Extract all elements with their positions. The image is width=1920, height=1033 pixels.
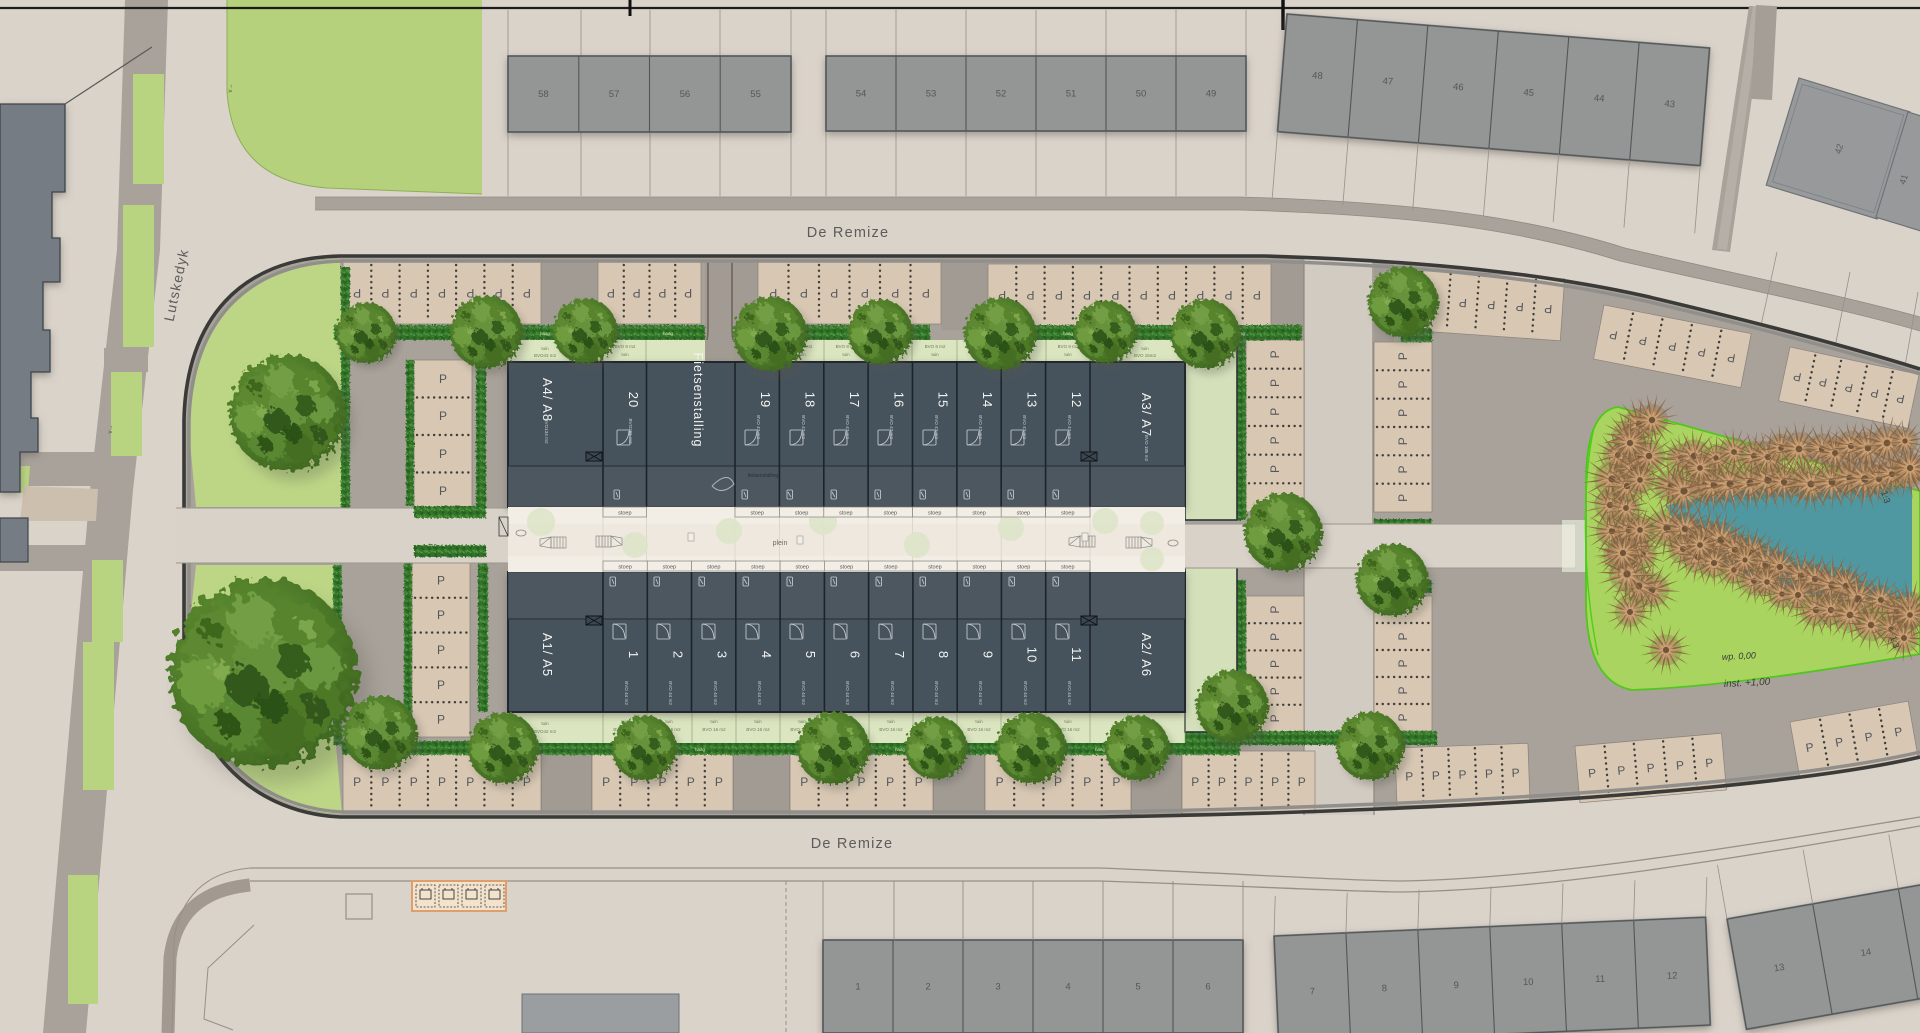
svg-text:P: P — [438, 286, 446, 300]
svg-text:2: 2 — [925, 982, 930, 993]
svg-text:A1/ A5: A1/ A5 — [540, 633, 555, 677]
svg-text:tuin: tuin — [710, 719, 718, 724]
svg-text:BVO 47 m2: BVO 47 m2 — [845, 415, 850, 439]
svg-text:P: P — [633, 286, 641, 300]
svg-text:3: 3 — [995, 982, 1000, 993]
svg-text:stoep: stoep — [750, 511, 763, 517]
svg-text:P: P — [687, 775, 695, 789]
svg-text:P: P — [891, 286, 899, 300]
svg-text:stoep: stoep — [1017, 565, 1030, 571]
svg-text:P: P — [437, 608, 445, 622]
svg-text:P: P — [438, 775, 446, 789]
svg-text:1: 1 — [855, 982, 860, 993]
svg-text:P: P — [861, 286, 869, 300]
svg-text:8: 8 — [1382, 983, 1388, 994]
svg-text:BVO 44 m2: BVO 44 m2 — [978, 681, 983, 705]
svg-text:stoep: stoep — [972, 511, 985, 517]
svg-text:BVO 47 m2: BVO 47 m2 — [889, 415, 894, 439]
svg-text:P: P — [1083, 288, 1091, 302]
svg-text:stoep: stoep — [884, 511, 897, 517]
svg-text:stoep: stoep — [840, 565, 853, 571]
svg-text:P: P — [1268, 408, 1282, 416]
svg-text:P: P — [1405, 769, 1413, 783]
svg-text:BVO43 m2: BVO43 m2 — [534, 353, 557, 358]
svg-text:4: 4 — [1065, 982, 1070, 993]
svg-text:tuin: tuin — [541, 721, 549, 726]
svg-text:P: P — [1168, 288, 1176, 302]
svg-text:v→: v→ — [228, 84, 234, 93]
svg-text:haag: haag — [695, 747, 706, 752]
svg-text:P: P — [437, 573, 445, 587]
svg-text:stoep: stoep — [973, 565, 986, 571]
svg-text:BVO 47 m2: BVO 47 m2 — [801, 415, 806, 439]
svg-text:P: P — [381, 286, 389, 300]
svg-text:P: P — [1271, 775, 1279, 789]
svg-text:plein: plein — [773, 540, 788, 547]
svg-text:A3/ A7: A3/ A7 — [1139, 393, 1154, 437]
svg-text:BVO 47 m2: BVO 47 m2 — [978, 415, 983, 439]
svg-text:BVO 185 m2: BVO 185 m2 — [1144, 435, 1149, 462]
svg-text:16: 16 — [891, 392, 906, 408]
svg-text:58: 58 — [538, 89, 549, 100]
svg-text:12: 12 — [1667, 970, 1678, 981]
svg-text:BVO 44 m2: BVO 44 m2 — [1067, 681, 1072, 705]
svg-text:P: P — [1396, 380, 1410, 388]
svg-text:P: P — [1253, 288, 1261, 302]
svg-text:tuin: tuin — [754, 719, 762, 724]
svg-text:stoep: stoep — [884, 565, 897, 571]
svg-text:stoep: stoep — [618, 565, 631, 571]
svg-text:stoep: stoep — [795, 565, 808, 571]
svg-text:3: 3 — [715, 651, 730, 659]
svg-text:P: P — [1511, 766, 1519, 780]
svg-text:tuin: tuin — [1064, 352, 1072, 357]
svg-text:P: P — [1268, 379, 1282, 387]
svg-text:stoep: stoep — [839, 511, 852, 517]
svg-text:P: P — [658, 286, 666, 300]
svg-text:tuin: tuin — [1141, 346, 1149, 351]
svg-text:P: P — [1432, 768, 1440, 782]
svg-text:stoep: stoep — [663, 565, 676, 571]
svg-text:P: P — [439, 484, 447, 498]
svg-text:BVO 44 m2: BVO 44 m2 — [757, 681, 762, 705]
svg-text:P: P — [1268, 436, 1282, 444]
svg-text:5: 5 — [1135, 982, 1140, 993]
svg-text:stoep: stoep — [928, 511, 941, 517]
svg-text:BVO 15m2: BVO 15m2 — [1134, 353, 1157, 358]
svg-text:P: P — [1485, 767, 1493, 781]
svg-text:P: P — [1544, 302, 1553, 317]
svg-text:P: P — [1268, 465, 1282, 473]
svg-text:haag: haag — [663, 331, 674, 336]
svg-text:6: 6 — [848, 651, 863, 659]
svg-text:P: P — [1218, 775, 1226, 789]
svg-text:P: P — [437, 713, 445, 727]
svg-text:P: P — [410, 775, 418, 789]
svg-text:P: P — [381, 775, 389, 789]
svg-text:9: 9 — [980, 651, 995, 659]
svg-text:6: 6 — [1205, 982, 1210, 993]
svg-text:P: P — [1675, 758, 1684, 773]
svg-text:11: 11 — [1069, 647, 1084, 663]
svg-text:P: P — [1268, 350, 1282, 358]
svg-text:P: P — [1224, 288, 1232, 302]
svg-text:7: 7 — [892, 651, 907, 659]
svg-text:stoep: stoep — [707, 565, 720, 571]
svg-text:10: 10 — [1025, 647, 1040, 663]
svg-text:P: P — [466, 286, 474, 300]
svg-text:BVO 47 m2: BVO 47 m2 — [1067, 415, 1072, 439]
svg-text:wp. 0,00: wp. 0,00 — [1722, 650, 1757, 662]
svg-text:BVO 8 m2: BVO 8 m2 — [1058, 344, 1079, 349]
svg-text:tuin: tuin — [931, 352, 939, 357]
svg-text:P: P — [1083, 775, 1091, 789]
svg-text:P: P — [602, 775, 610, 789]
svg-text:49: 49 — [1206, 89, 1217, 100]
svg-text:P: P — [1191, 775, 1199, 789]
svg-text:P: P — [1026, 288, 1034, 302]
svg-text:stoep: stoep — [928, 565, 941, 571]
svg-text:56: 56 — [680, 89, 691, 100]
svg-text:P: P — [1396, 713, 1410, 721]
svg-text:De Remize: De Remize — [807, 225, 890, 241]
svg-text:P: P — [353, 286, 361, 300]
svg-text:P: P — [1140, 288, 1148, 302]
svg-text:BVO 47 m2: BVO 47 m2 — [934, 415, 939, 439]
svg-text:45: 45 — [1523, 87, 1534, 99]
svg-text:A2/ A6: A2/ A6 — [1139, 633, 1154, 677]
svg-text:47: 47 — [1382, 76, 1393, 88]
svg-text:46: 46 — [1453, 82, 1464, 94]
svg-text:haag: haag — [540, 331, 551, 336]
svg-text:BVO 16 m2: BVO 16 m2 — [967, 727, 991, 732]
svg-text:v→: v→ — [108, 425, 114, 434]
svg-text:stoep: stoep — [618, 511, 631, 517]
svg-text:tuin: tuin — [1064, 719, 1072, 724]
svg-text:BVO 44 m2: BVO 44 m2 — [624, 681, 629, 705]
svg-text:57: 57 — [609, 89, 620, 100]
svg-text:tuin: tuin — [842, 352, 850, 357]
svg-text:P: P — [1588, 766, 1597, 781]
svg-text:P: P — [1268, 606, 1282, 614]
svg-text:P: P — [1268, 633, 1282, 641]
svg-text:tuin: tuin — [798, 719, 806, 724]
svg-text:BVO 8 m2: BVO 8 m2 — [925, 344, 946, 349]
svg-text:P: P — [1111, 288, 1119, 302]
svg-text:P: P — [800, 286, 808, 300]
svg-text:A4/ A8: A4/ A8 — [540, 378, 555, 422]
svg-text:P: P — [684, 286, 692, 300]
svg-text:P: P — [439, 447, 447, 461]
svg-text:P: P — [1515, 300, 1524, 315]
svg-text:BVO 44 m2: BVO 44 m2 — [801, 681, 806, 705]
svg-text:P: P — [1244, 775, 1252, 789]
svg-text:P: P — [922, 286, 930, 300]
svg-text:BVO 44 m2: BVO 44 m2 — [713, 681, 718, 705]
svg-text:P: P — [1458, 768, 1466, 782]
svg-text:P: P — [607, 286, 615, 300]
svg-text:Fietsenstalling: Fietsenstalling — [691, 353, 705, 448]
svg-text:P: P — [437, 643, 445, 657]
svg-text:P: P — [466, 775, 474, 789]
svg-text:P: P — [1617, 763, 1626, 778]
svg-text:P: P — [1298, 775, 1306, 789]
svg-text:14: 14 — [980, 392, 995, 408]
svg-text:P: P — [1646, 761, 1655, 776]
svg-text:17: 17 — [847, 392, 862, 408]
svg-text:haag: haag — [1063, 331, 1074, 336]
svg-text:P: P — [996, 775, 1004, 789]
svg-text:2: 2 — [670, 651, 685, 659]
svg-text:18: 18 — [803, 392, 818, 408]
svg-text:P: P — [886, 775, 894, 789]
svg-text:P: P — [353, 775, 361, 789]
svg-text:BVO 16 m2: BVO 16 m2 — [702, 727, 726, 732]
svg-text:stoep: stoep — [795, 511, 808, 517]
svg-text:54: 54 — [856, 89, 867, 100]
svg-text:P: P — [1458, 296, 1467, 311]
svg-text:43: 43 — [1664, 99, 1675, 111]
svg-text:53: 53 — [926, 89, 937, 100]
svg-text:tuin: tuin — [621, 352, 629, 357]
svg-text:fietsenstalling: fietsenstalling — [748, 473, 779, 479]
svg-text:P: P — [1268, 660, 1282, 668]
svg-text:50: 50 — [1136, 89, 1147, 100]
svg-text:BVO 47 m2: BVO 47 m2 — [756, 415, 761, 439]
svg-text:BVO 47 m2: BVO 47 m2 — [1022, 415, 1027, 439]
svg-text:P: P — [523, 286, 531, 300]
svg-text:BVO134 m2: BVO134 m2 — [544, 418, 549, 443]
svg-text:P: P — [1055, 288, 1063, 302]
svg-text:P: P — [1396, 632, 1410, 640]
svg-text:stoep: stoep — [1061, 565, 1074, 571]
svg-text:1: 1 — [626, 651, 641, 659]
svg-text:11: 11 — [1595, 974, 1605, 985]
svg-text:BVO 44 m2: BVO 44 m2 — [668, 681, 673, 705]
svg-text:8: 8 — [936, 651, 951, 659]
svg-text:tuin: tuin — [541, 346, 549, 351]
svg-text:P: P — [437, 678, 445, 692]
svg-text:tuin: tuin — [887, 719, 895, 724]
svg-text:P: P — [439, 372, 447, 386]
svg-text:12: 12 — [1069, 392, 1084, 408]
svg-text:7: 7 — [1310, 986, 1316, 997]
svg-text:15: 15 — [936, 392, 951, 408]
svg-text:tuin: tuin — [665, 719, 673, 724]
svg-text:19: 19 — [758, 392, 773, 408]
svg-text:P: P — [1396, 465, 1410, 473]
svg-text:9: 9 — [1453, 980, 1459, 991]
svg-text:BVO 44 m2: BVO 44 m2 — [1023, 681, 1028, 705]
svg-text:P: P — [830, 286, 838, 300]
svg-text:51: 51 — [1066, 89, 1077, 100]
svg-text:20: 20 — [626, 392, 641, 408]
svg-text:P: P — [1396, 659, 1410, 667]
svg-text:4: 4 — [759, 651, 774, 659]
svg-text:P: P — [1487, 298, 1496, 313]
svg-text:P: P — [1396, 437, 1410, 445]
svg-text:BVO42 m2: BVO42 m2 — [534, 729, 557, 734]
svg-text:14: 14 — [1860, 947, 1872, 960]
svg-text:stoep: stoep — [1017, 511, 1030, 517]
svg-text:BVO 16 m2: BVO 16 m2 — [879, 727, 903, 732]
svg-text:haag: haag — [895, 747, 906, 752]
svg-text:P: P — [1396, 409, 1410, 417]
svg-text:BVO 44 m2: BVO 44 m2 — [845, 681, 850, 705]
svg-text:13: 13 — [1773, 962, 1785, 975]
svg-text:44: 44 — [1593, 93, 1604, 105]
svg-text:P: P — [715, 775, 723, 789]
svg-text:52: 52 — [996, 89, 1007, 100]
svg-text:stoep: stoep — [751, 565, 764, 571]
svg-text:5: 5 — [803, 651, 818, 659]
svg-text:tuin: tuin — [975, 719, 983, 724]
svg-text:P: P — [439, 409, 447, 423]
svg-text:P: P — [1396, 686, 1410, 694]
svg-text:48: 48 — [1312, 70, 1323, 82]
svg-text:10: 10 — [1523, 977, 1534, 988]
svg-text:BVO 44 m2: BVO 44 m2 — [890, 681, 895, 705]
svg-text:P: P — [410, 286, 418, 300]
svg-text:13: 13 — [1024, 392, 1039, 408]
svg-text:BVO 16 m2: BVO 16 m2 — [746, 727, 770, 732]
svg-text:P: P — [1396, 494, 1410, 502]
svg-text:P: P — [800, 775, 808, 789]
svg-text:P: P — [1268, 687, 1282, 695]
svg-text:P: P — [1705, 756, 1714, 771]
svg-text:55: 55 — [750, 89, 761, 100]
svg-text:De Remize: De Remize — [811, 836, 894, 852]
svg-text:haag: haag — [1095, 747, 1106, 752]
svg-text:BVO 44 m2: BVO 44 m2 — [934, 681, 939, 705]
svg-text:P: P — [1396, 352, 1410, 360]
svg-text:stoep: stoep — [1061, 511, 1074, 517]
